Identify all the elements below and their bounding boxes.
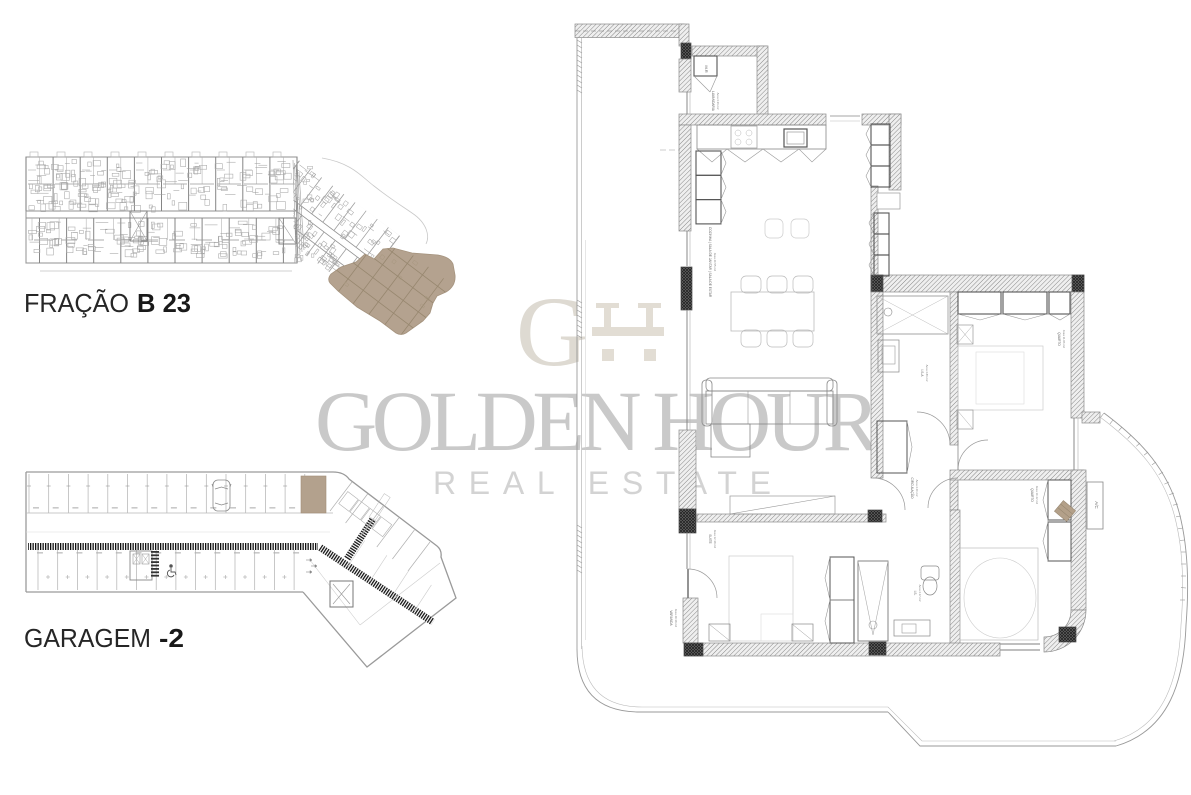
svg-text:Area 10.42 m2: Area 10.42 m2 [1035,486,1039,505]
svg-text:Area 11.86 m2: Area 11.86 m2 [1062,330,1066,349]
svg-text:Area 4.20 m2: Area 4.20 m2 [915,480,919,497]
svg-text:Area 12.38 m2: Area 12.38 m2 [713,530,717,549]
svg-text:QUARTO: QUARTO [1057,332,1061,346]
svg-text:-2: -2 [159,623,184,653]
svg-text:I.S.A: I.S.A [920,370,924,378]
svg-text:LAVANDARIA: LAVANDARIA [711,91,715,112]
svg-text:B 23: B 23 [137,288,191,318]
svg-text:REAL ESTATE: REAL ESTATE [433,465,771,501]
svg-text:FRAÇÃO: FRAÇÃO [24,288,129,318]
svg-text:Area 49.38 m2: Area 49.38 m2 [674,609,678,628]
svg-text:M.R: M.R [704,65,709,72]
svg-text:Area 40.55 m2: Area 40.55 m2 [713,253,717,272]
svg-text:QUARTO: QUARTO [1030,488,1034,502]
svg-text:I.S.: I.S. [913,591,917,596]
svg-text:SUITE: SUITE [708,534,712,543]
svg-text:Area 4.86 m2: Area 4.86 m2 [925,365,929,382]
svg-text:Area 3.36 m2: Area 3.36 m2 [716,93,720,110]
svg-text:VARANDA: VARANDA [669,610,673,626]
svg-text:CIRCULAÇÃO: CIRCULAÇÃO [910,478,915,499]
svg-text:COZINHA | SALA DE JANTAR | SAL: COZINHA | SALA DE JANTAR | SALA DE ESTAR [708,227,712,298]
svg-text:A/C: A/C [1094,501,1099,509]
svg-text:GARAGEM: GARAGEM [24,623,151,653]
svg-text:Area 4.17 m2: Area 4.17 m2 [918,585,922,602]
svg-text:GOLDEN HOUR: GOLDEN HOUR [315,373,881,469]
